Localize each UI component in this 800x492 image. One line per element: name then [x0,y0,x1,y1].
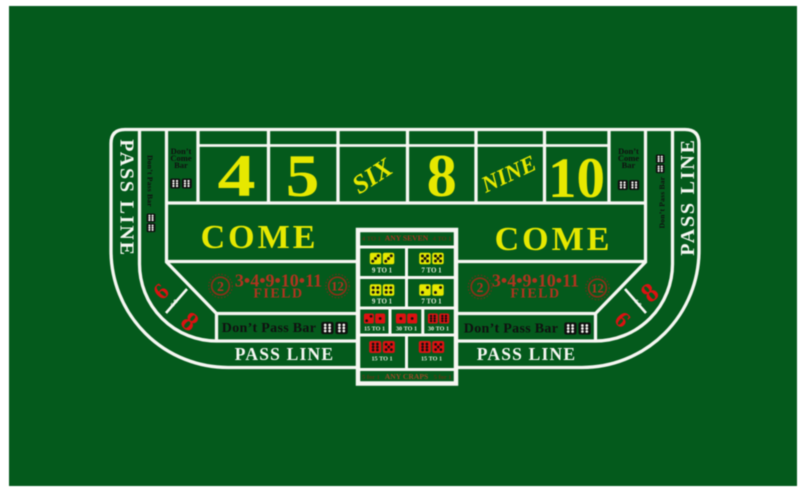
svg-text:12: 12 [331,280,344,294]
svg-text:Don’t Pass Bar: Don’t Pass Bar [658,176,667,228]
svg-text:Bar: Bar [174,160,188,170]
svg-text:7 TO 1: 7 TO 1 [421,298,442,306]
svg-text:4 TO 1: 4 TO 1 [433,236,452,243]
svg-text:PASS LINE: PASS LINE [677,138,699,256]
svg-text:COME: COME [201,219,319,256]
svg-text:COME: COME [495,221,613,258]
svg-text:PASS LINE: PASS LINE [235,344,334,364]
svg-text:15 TO 1: 15 TO 1 [364,326,385,333]
svg-text:FIELD: FIELD [253,287,303,302]
svg-text:Don’t Pass Bar: Don’t Pass Bar [222,321,316,336]
svg-text:PASS LINE: PASS LINE [477,344,576,364]
svg-text:2: 2 [217,279,224,294]
svg-text:FIELD: FIELD [510,287,560,302]
svg-text:7 TO 1: 7 TO 1 [421,267,442,275]
svg-text:ANY SEVEN: ANY SEVEN [385,234,429,243]
svg-text:10: 10 [548,147,605,210]
svg-text:5 for 1: 5 for 1 [362,374,380,381]
svg-text:Bar: Bar [622,160,636,170]
svg-text:30 TO 1: 30 TO 1 [428,326,449,333]
svg-text:Don’t Pass Bar: Don’t Pass Bar [146,155,155,207]
svg-text:ANY CRAPS: ANY CRAPS [385,372,428,381]
svg-text:12: 12 [591,282,604,296]
svg-text:9 TO 1: 9 TO 1 [372,298,393,306]
svg-text:PASS LINE: PASS LINE [116,139,138,257]
svg-text:4 TO 1: 4 TO 1 [362,236,381,243]
svg-text:15 TO 1: 15 TO 1 [421,356,442,363]
svg-text:5 for 1: 5 for 1 [434,374,452,381]
svg-text:2: 2 [477,280,484,295]
svg-text:9 TO 1: 9 TO 1 [372,267,393,275]
svg-text:Don’t Pass Bar: Don’t Pass Bar [464,322,558,337]
svg-text:15 TO 1: 15 TO 1 [371,356,392,363]
svg-text:5: 5 [286,142,320,209]
svg-text:4: 4 [217,143,255,209]
svg-text:8: 8 [427,143,457,209]
svg-text:30 TO 1: 30 TO 1 [396,326,417,333]
